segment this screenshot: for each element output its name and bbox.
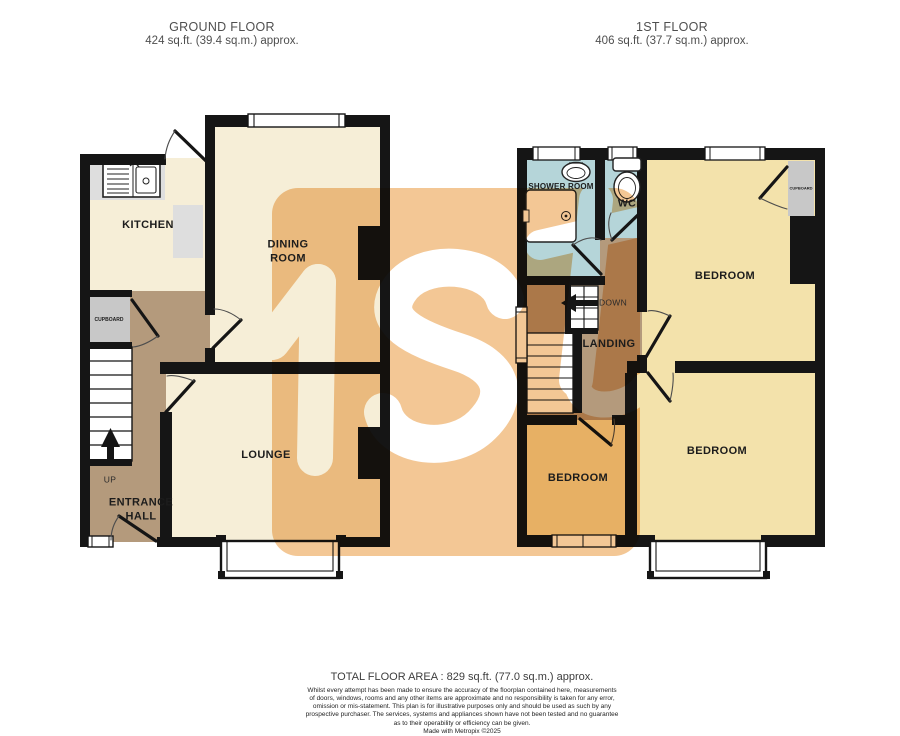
chimney-breast (790, 216, 815, 284)
cupboard-label: CUPBOARD (95, 317, 124, 323)
chimney-breast (358, 226, 380, 280)
basin-icon (562, 163, 590, 182)
first-floor-title: 1ST FLOOR (595, 20, 748, 34)
window (533, 147, 580, 160)
first-floor-area: 406 sq.ft. (37.7 sq.m.) approx. (595, 35, 748, 47)
disclaimer-text: Whilst every attempt has been made to en… (142, 687, 782, 728)
cupboard-first-floor-label: CUPBOARD (789, 186, 812, 191)
entrance-hall-label: ENTRANCE HALL (109, 496, 173, 524)
stairs-up-icon (88, 347, 132, 466)
window (248, 114, 345, 127)
first-floor-plan (516, 147, 825, 579)
ground-floor-title: GROUND FLOOR (145, 20, 298, 34)
dining-room-label: DINING ROOM (268, 238, 309, 266)
lounge-label: LOUNGE (241, 449, 290, 463)
sink-icon (103, 163, 160, 197)
window (552, 535, 616, 547)
bay-window (645, 535, 771, 579)
kitchen-appliance (173, 205, 203, 258)
bedroom-back-label: BEDROOM (687, 445, 747, 459)
ground-floor-area: 424 sq.ft. (39.4 sq.m.) approx. (145, 35, 298, 47)
shower-tray-icon (523, 190, 576, 242)
ground-floor-header: GROUND FLOOR 424 sq.ft. (39.4 sq.m.) app… (145, 20, 298, 47)
down-label: DOWN (599, 298, 627, 309)
window (88, 536, 113, 547)
shower-room-label: SHOWER ROOM (528, 182, 593, 192)
bedroom-front-label: BEDROOM (695, 270, 755, 284)
door (165, 131, 206, 161)
bay-window (216, 535, 346, 579)
wc-label: WC (618, 197, 636, 210)
bedroom-small-label: BEDROOM (548, 472, 608, 486)
toilet-icon (613, 158, 641, 202)
window (516, 307, 527, 363)
first-floor-header: 1ST FLOOR 406 sq.ft. (37.7 sq.m.) approx… (595, 20, 748, 47)
floorplan-page: GROUND FLOOR 424 sq.ft. (39.4 sq.m.) app… (0, 0, 900, 736)
total-floor-area: TOTAL FLOOR AREA : 829 sq.ft. (77.0 sq.m… (142, 671, 782, 683)
up-label: UP (104, 475, 116, 486)
window (705, 147, 765, 160)
chimney-breast (358, 427, 380, 479)
kitchen-label: KITCHEN (122, 219, 174, 233)
landing-label: LANDING (583, 338, 636, 352)
credit-text: Made with Metropix ©2025 (142, 728, 782, 735)
footer: TOTAL FLOOR AREA : 829 sq.ft. (77.0 sq.m… (142, 671, 782, 735)
floorplan-drawing (0, 0, 900, 736)
